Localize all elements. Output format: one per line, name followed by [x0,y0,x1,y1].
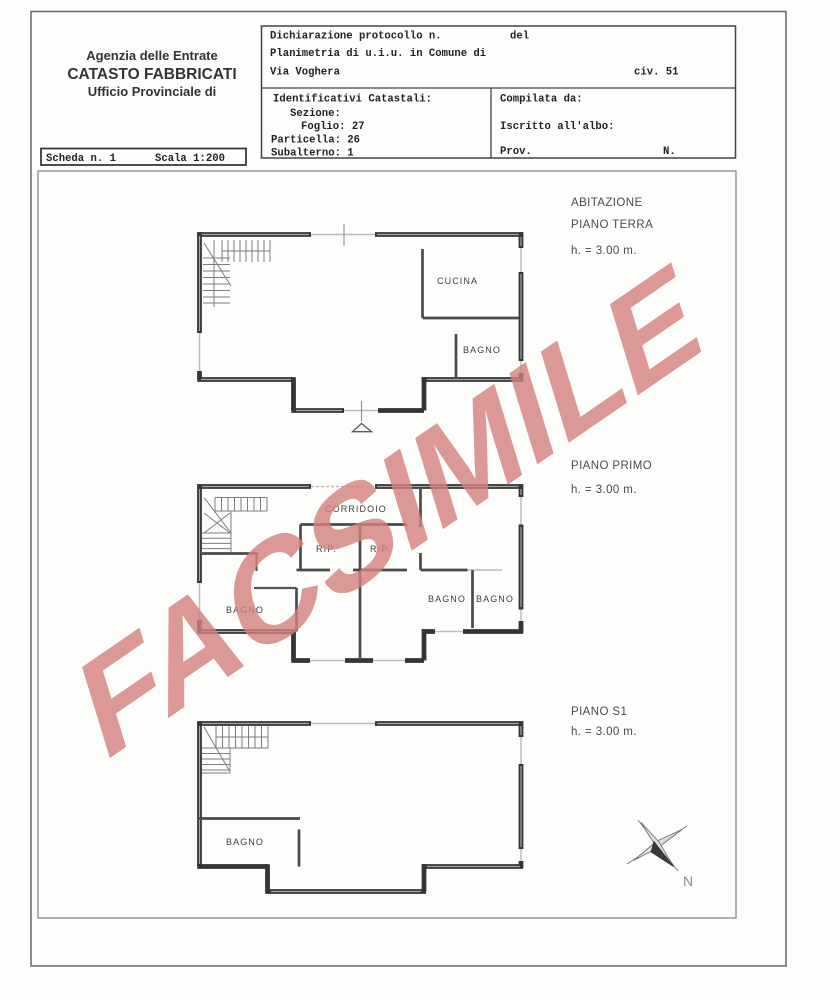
svg-text:Identificativi Catastali:: Identificativi Catastali: [273,94,432,106]
svg-text:Foglio: 27: Foglio: 27 [301,121,365,133]
svg-text:Iscritto all'albo:: Iscritto all'albo: [500,121,614,133]
svg-text:PIANO S1: PIANO S1 [571,706,627,718]
svg-text:Subalterno: 1: Subalterno: 1 [271,148,354,160]
svg-text:h. = 3.00 m.: h. = 3.00 m. [571,484,637,496]
svg-text:Planimetria di u.i.u. in Comun: Planimetria di u.i.u. in Comune di [270,48,486,60]
svg-text:Particella: 26: Particella: 26 [271,135,360,147]
svg-text:Agenzia delle Entrate: Agenzia delle Entrate [86,48,217,63]
svg-text:Scala 1:200: Scala 1:200 [155,153,225,165]
svg-text:BAGNO: BAGNO [226,837,264,847]
svg-text:Ufficio Provinciale di: Ufficio Provinciale di [88,84,217,99]
svg-text:BAGNO: BAGNO [428,594,466,604]
svg-text:ABITAZIONE: ABITAZIONE [571,197,643,209]
svg-text:Sezione:: Sezione: [290,108,341,120]
svg-text:del: del [510,31,529,43]
svg-text:PIANO TERRA: PIANO TERRA [571,219,653,231]
svg-text:h. = 3.00 m.: h. = 3.00 m. [571,245,637,257]
svg-text:N: N [683,873,693,889]
svg-text:Dichiarazione protocollo n.: Dichiarazione protocollo n. [270,31,442,43]
svg-text:CUCINA: CUCINA [437,276,478,286]
svg-text:BAGNO: BAGNO [476,594,514,604]
svg-text:N.: N. [663,146,676,158]
svg-text:Via Voghera: Via Voghera [270,67,341,79]
svg-text:civ. 51: civ. 51 [634,67,679,79]
svg-text:CATASTO FABBRICATI: CATASTO FABBRICATI [67,66,236,83]
svg-text:Compilata da:: Compilata da: [500,94,583,106]
svg-text:h. = 3.00 m.: h. = 3.00 m. [571,726,637,738]
svg-text:Scheda n. 1: Scheda n. 1 [46,153,116,165]
svg-text:Prov.: Prov. [500,146,532,158]
